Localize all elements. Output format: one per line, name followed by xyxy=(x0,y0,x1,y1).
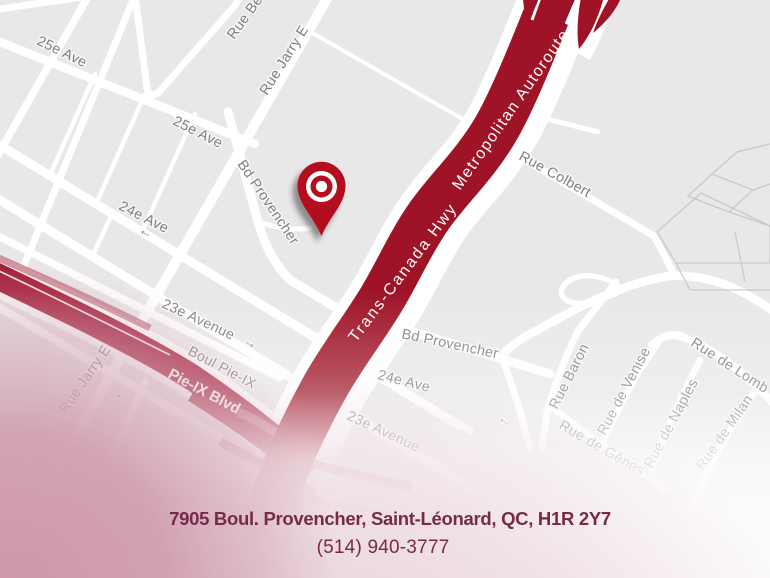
svg-text:7905 Boul. Provencher, Saint-L: 7905 Boul. Provencher, Saint-Léonard, QC… xyxy=(169,508,611,529)
svg-text:(514) 940-3777: (514) 940-3777 xyxy=(317,537,450,558)
